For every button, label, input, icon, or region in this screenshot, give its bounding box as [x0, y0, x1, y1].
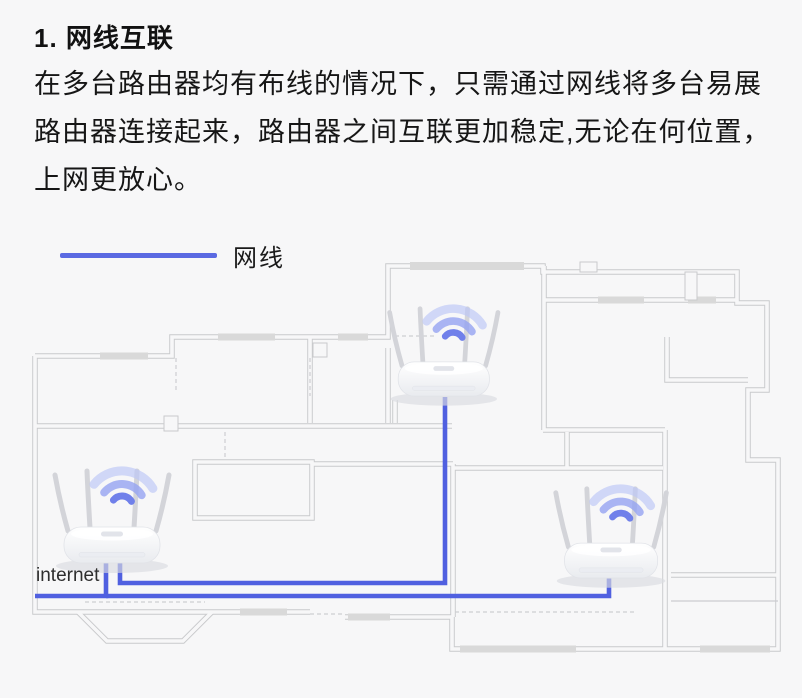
page: 1. 网线互联 在多台路由器均有布线的情况下，只需通过网线将多台易展 路由器连接… — [0, 0, 802, 698]
router-top — [390, 307, 498, 406]
description-paragraph: 在多台路由器均有布线的情况下，只需通过网线将多台易展 路由器连接起来，路由器之间… — [34, 60, 794, 204]
router-internet — [55, 469, 169, 573]
wall-lines — [35, 266, 778, 649]
internet-label: internet — [36, 565, 99, 587]
paragraph-line-3: 上网更放心。 — [34, 156, 794, 204]
paragraph-line-2: 路由器连接起来，路由器之间互联更加稳定,无论在何位置， — [34, 108, 794, 156]
cable-line-sample — [60, 253, 217, 258]
floor-plan-svg — [0, 260, 802, 698]
router-right — [556, 487, 667, 588]
floor-plan: internet — [0, 260, 802, 698]
paragraph-line-1: 在多台路由器均有布线的情况下，只需通过网线将多台易展 — [34, 60, 794, 108]
section-title: 1. 网线互联 — [34, 18, 174, 55]
